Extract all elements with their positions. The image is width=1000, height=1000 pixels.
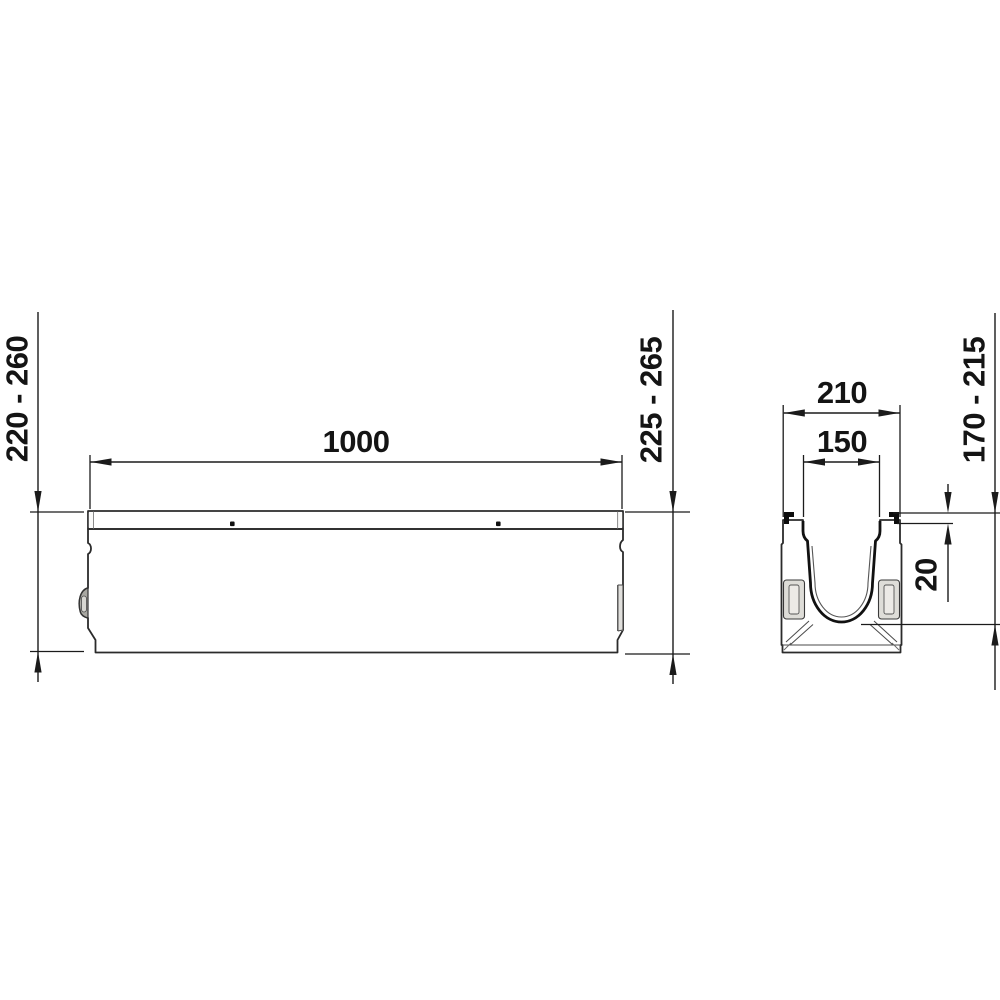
dim-height-left: 220 - 260 (0, 312, 84, 682)
dim-arrow-right (879, 409, 900, 416)
dim-inner-width: 150 (804, 424, 880, 517)
dim-inner-depth: 170 - 215 (861, 313, 1000, 690)
dim-channel-length-label: 1000 (323, 424, 390, 459)
dim-arrow-left (784, 409, 805, 416)
dim-arrow-left (804, 458, 825, 465)
side-view-edge-rail-left-end (89, 513, 93, 528)
section-steel-edge-right (889, 512, 899, 524)
channel-technical-drawing: 1000 220 - 260 225 - 265 210 150 (0, 0, 1000, 1000)
section-base-corner-right (892, 643, 899, 650)
section-knockout-right (879, 580, 900, 619)
dim-inner-width-label: 150 (817, 424, 867, 459)
side-view-right-joint-tongue (618, 585, 623, 631)
knockout-inner (789, 585, 799, 614)
technical-drawing-page: 1000 220 - 260 225 - 265 210 150 (0, 0, 1000, 1000)
side-view-concrete-body (79, 529, 623, 653)
side-view-edge-rail (88, 511, 623, 529)
section-liner-line (812, 546, 871, 617)
dim-arrow-up (34, 652, 41, 673)
side-view-left-joint-tab-inset (82, 596, 87, 612)
dim-height-right: 225 - 265 (625, 310, 690, 684)
channel-cross-section-view (782, 512, 902, 653)
dim-channel-length: 1000 (90, 424, 622, 509)
dim-height-right-label: 225 - 265 (634, 336, 669, 463)
dim-arrow-up (669, 654, 676, 675)
dim-height-left-label: 220 - 260 (0, 336, 35, 463)
dim-arrow-left (91, 458, 112, 465)
dim-arrow-down (944, 492, 951, 513)
dim-arrow-right (858, 458, 879, 465)
dim-inner-depth-label: 170 - 215 (957, 336, 992, 463)
dim-arrow-up (991, 625, 998, 646)
dim-arrow-right (601, 458, 622, 465)
knockout-inner (884, 585, 894, 614)
side-view-fixing-screw-right (496, 522, 501, 527)
side-view-edge-rail-right-end (618, 513, 622, 528)
dim-edge-offset-label: 20 (909, 558, 944, 591)
dim-arrow-down (34, 491, 41, 512)
dim-edge-offset: 20 (893, 484, 1000, 602)
dim-arrow-down (991, 492, 998, 513)
dim-arrow-down (669, 491, 676, 512)
section-steel-edge-left (784, 512, 794, 524)
dim-outer-width-label: 210 (817, 375, 867, 410)
channel-side-view (79, 511, 623, 653)
dim-arrow-up (944, 524, 951, 545)
side-view-fixing-screw-left (230, 522, 235, 527)
section-knockout-left (784, 580, 805, 619)
section-base-corner-left (784, 643, 791, 650)
